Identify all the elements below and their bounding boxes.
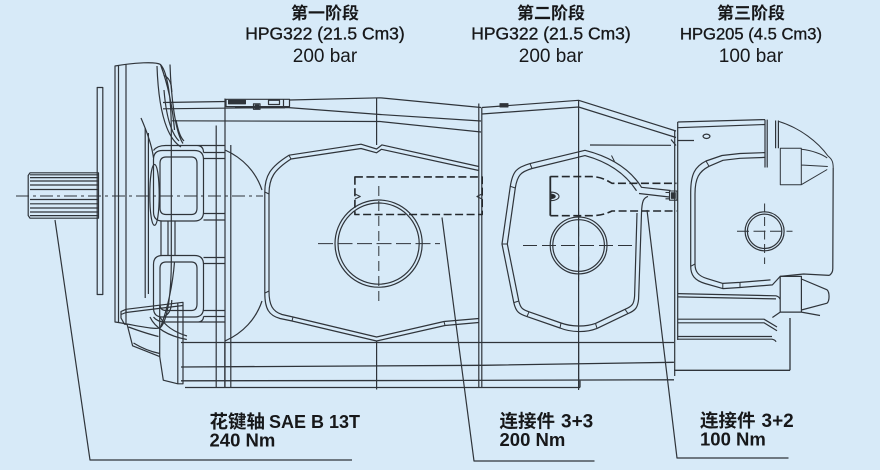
svg-text:240 Nm: 240 Nm	[210, 429, 276, 450]
svg-text:HPG205 (4.5 Cm3): HPG205 (4.5 Cm3)	[680, 25, 822, 44]
svg-text:HPG322 (21.5 Cm3): HPG322 (21.5 Cm3)	[471, 24, 631, 44]
svg-text:HPG322 (21.5 Cm3): HPG322 (21.5 Cm3)	[245, 24, 405, 44]
svg-text:100 Nm: 100 Nm	[700, 429, 766, 450]
svg-text:100 bar: 100 bar	[719, 46, 784, 67]
svg-text:200 bar: 200 bar	[293, 46, 358, 67]
svg-text:3+3: 3+3	[561, 412, 593, 433]
svg-text:200 Nm: 200 Nm	[500, 429, 566, 450]
svg-text:3+2: 3+2	[762, 411, 794, 432]
svg-text:SAE B 13T: SAE B 13T	[269, 412, 360, 432]
svg-text:200 bar: 200 bar	[519, 46, 584, 67]
